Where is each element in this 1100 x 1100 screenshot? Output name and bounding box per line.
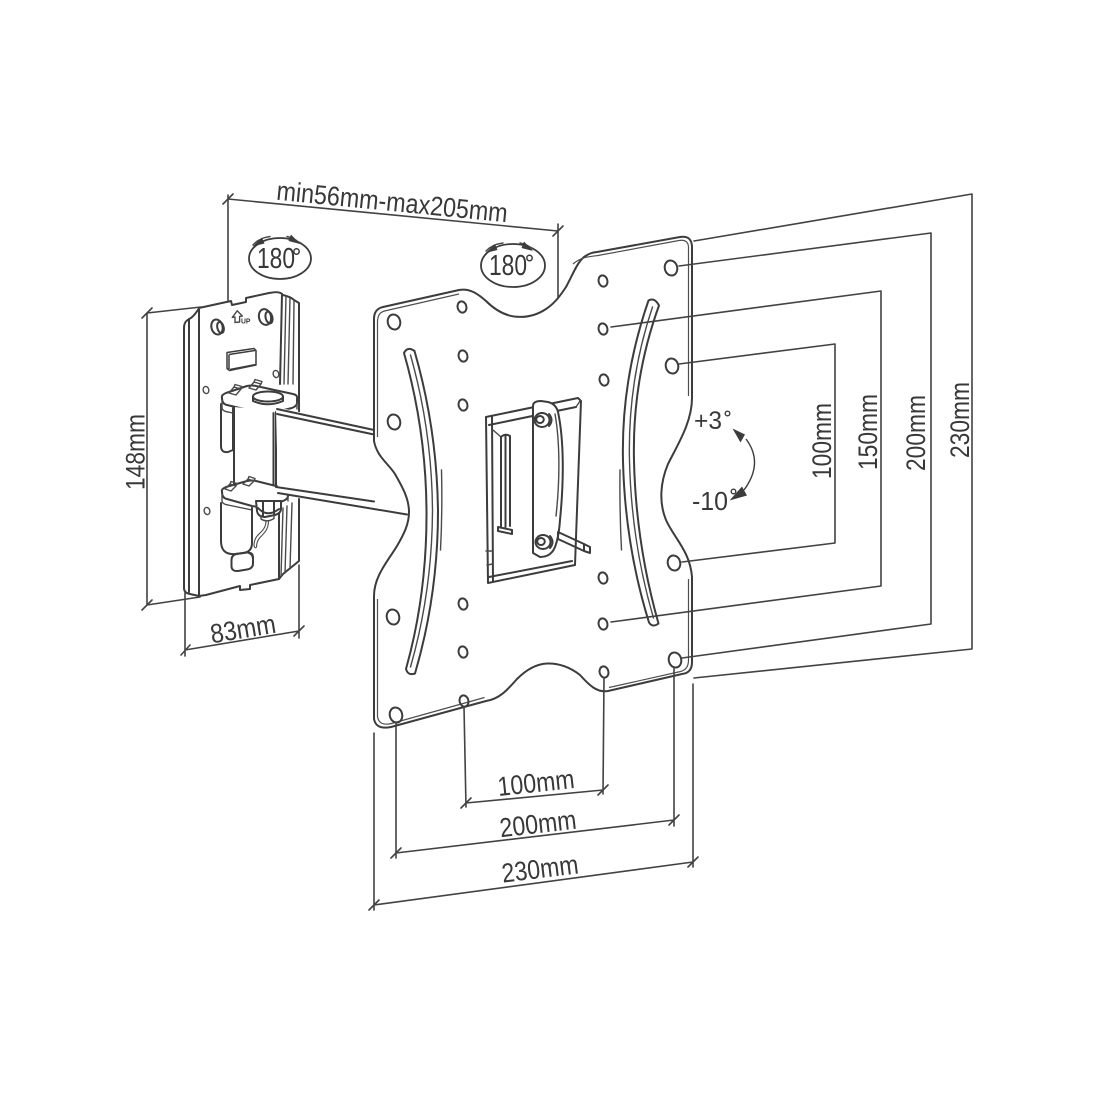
- svg-text:-10: -10: [692, 486, 728, 516]
- svg-text:180: 180: [489, 250, 527, 282]
- svg-text:100mm: 100mm: [807, 403, 837, 479]
- svg-text:+3: +3: [694, 407, 722, 435]
- svg-text:180: 180: [257, 243, 295, 275]
- svg-text:200mm: 200mm: [901, 395, 931, 471]
- svg-text:230mm: 230mm: [945, 382, 975, 458]
- svg-text:148mm: 148mm: [121, 414, 151, 490]
- svg-text:150mm: 150mm: [853, 394, 883, 470]
- svg-text:UP: UP: [241, 317, 251, 326]
